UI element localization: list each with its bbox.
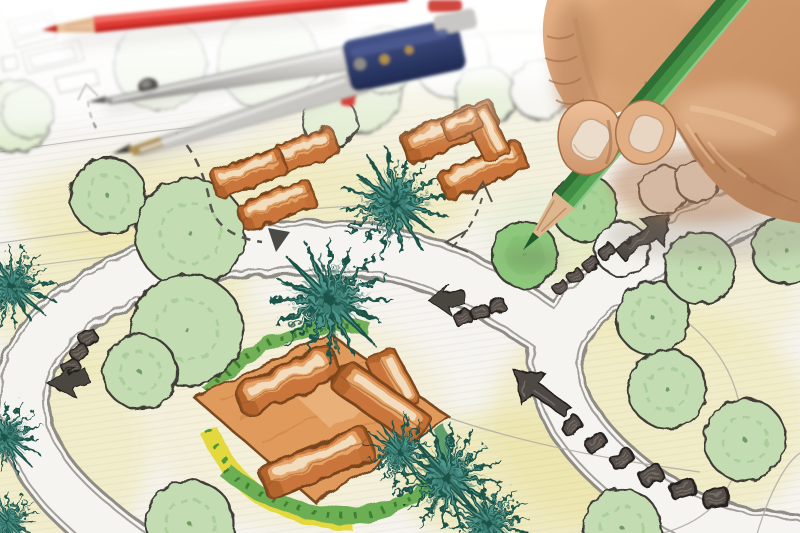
- landscape-plan-photo: [0, 0, 800, 533]
- compass-hinge: [354, 58, 366, 70]
- stepping-stone: [702, 487, 730, 509]
- photo-landscape-plan-drawing: [0, 0, 800, 533]
